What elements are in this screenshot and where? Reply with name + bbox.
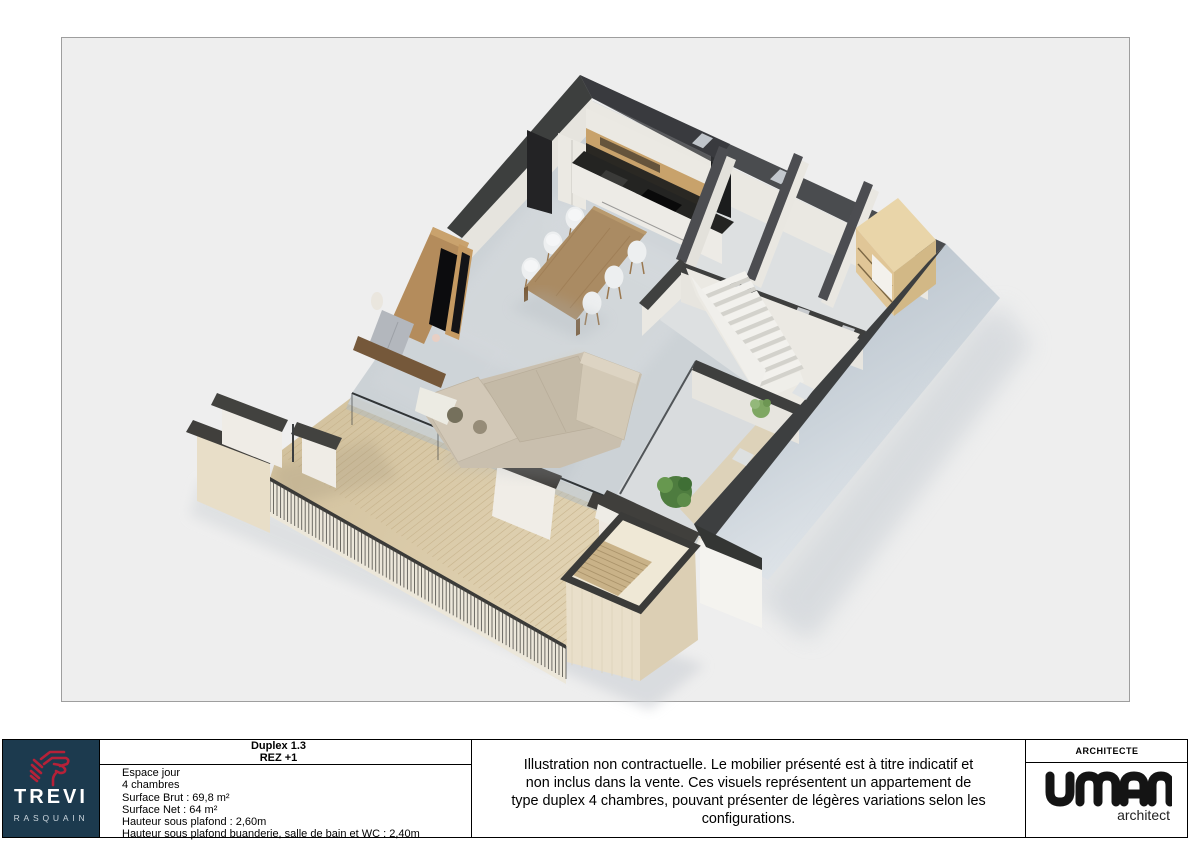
svg-text:architect: architect	[1117, 807, 1170, 823]
